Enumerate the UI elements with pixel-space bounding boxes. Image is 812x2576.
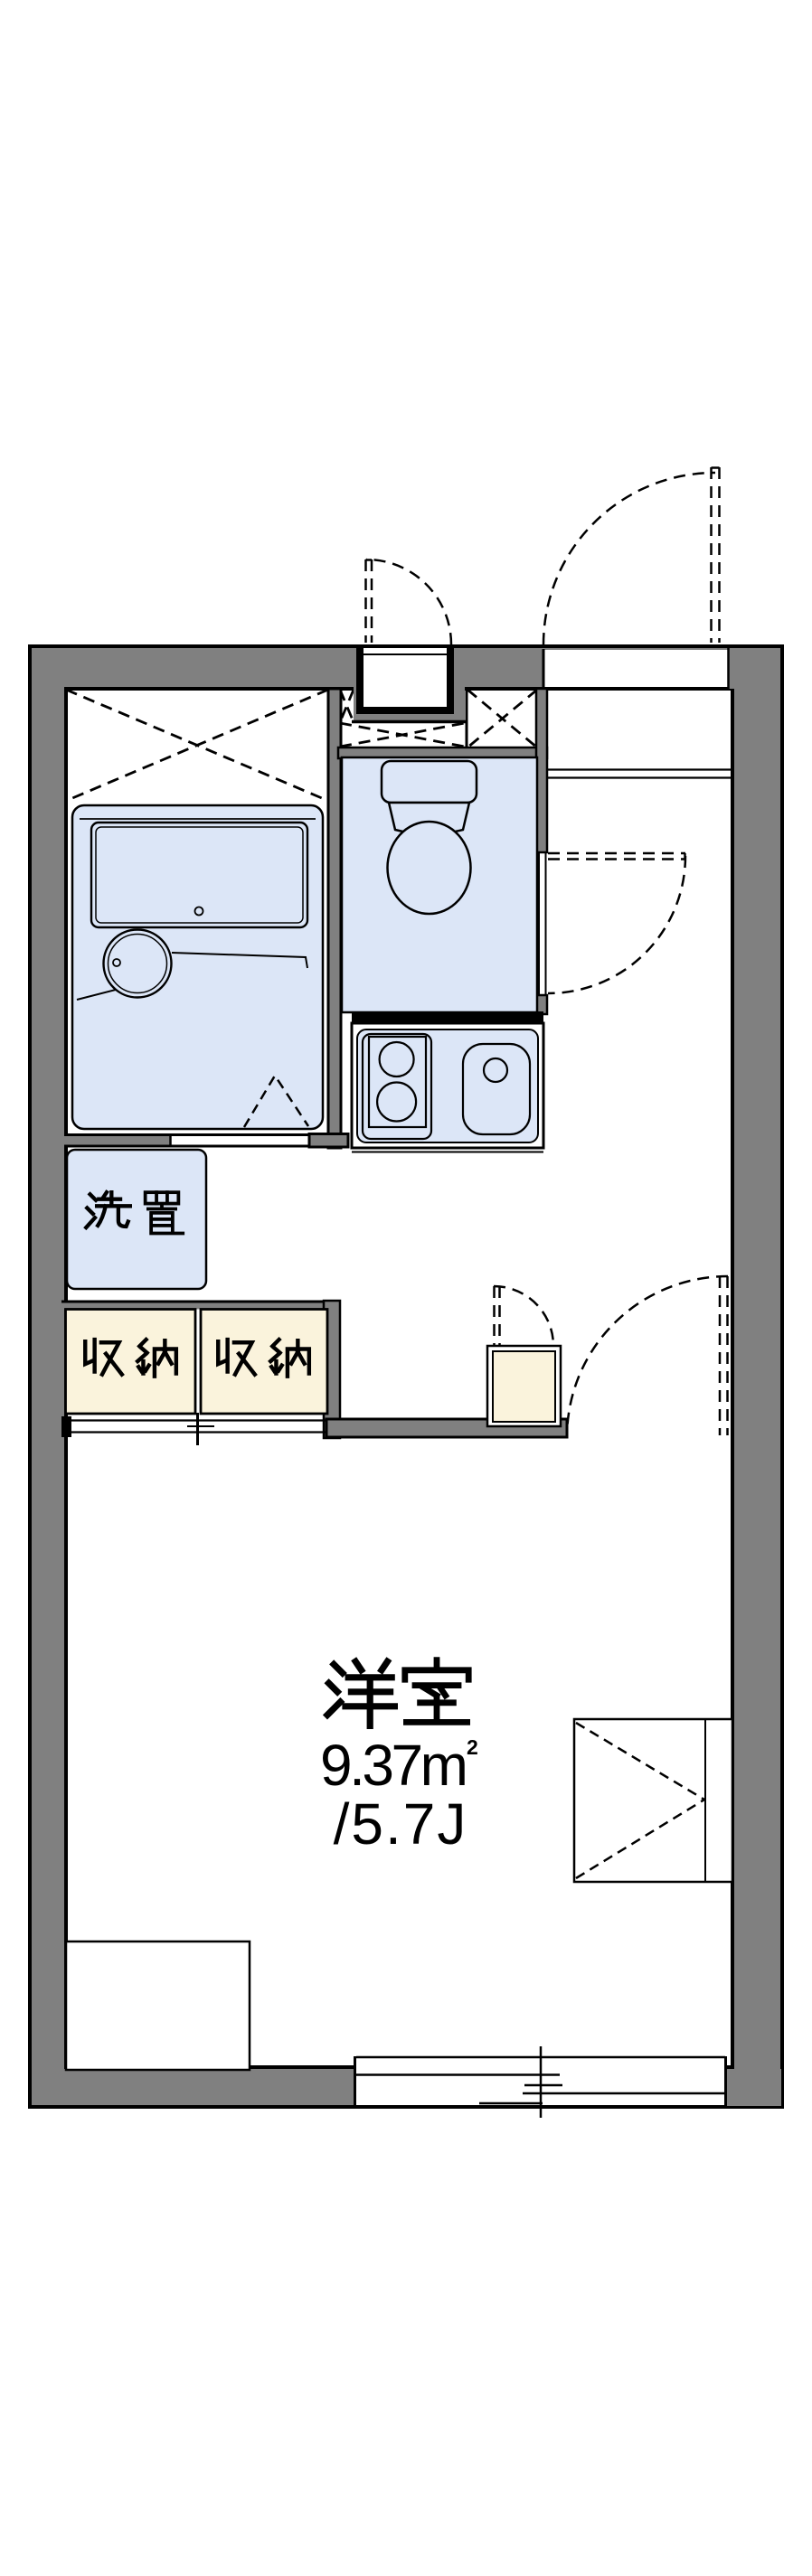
svg-text:9.37m: 9.37m	[320, 1733, 466, 1798]
svg-text:2: 2	[467, 1735, 478, 1759]
svg-text:/5.7J: /5.7J	[334, 1791, 468, 1857]
